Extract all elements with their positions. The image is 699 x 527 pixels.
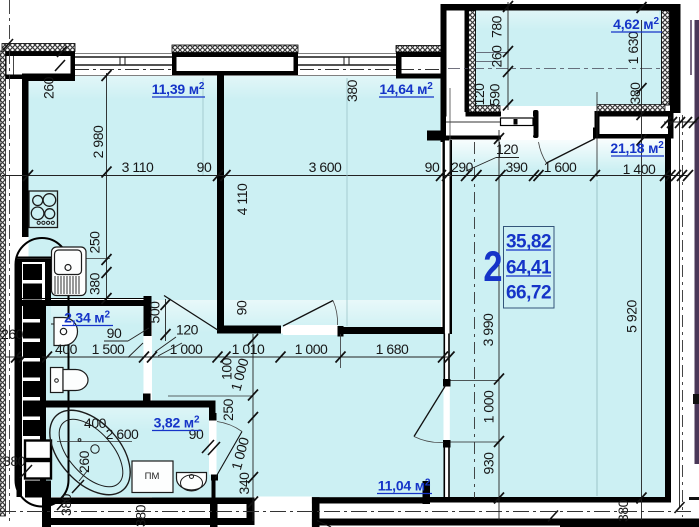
svg-text:1 500: 1 500: [92, 341, 125, 357]
svg-text:1 600: 1 600: [544, 159, 577, 175]
svg-text:14,64 м2: 14,64 м2: [379, 81, 433, 97]
svg-text:1 630: 1 630: [625, 31, 641, 64]
svg-text:590: 590: [487, 83, 503, 106]
svg-text:1 000: 1 000: [481, 390, 497, 423]
svg-text:2 600: 2 600: [106, 426, 139, 442]
svg-text:340: 340: [236, 472, 252, 495]
svg-text:380: 380: [133, 504, 149, 527]
svg-text:120: 120: [496, 141, 519, 157]
svg-text:1 000: 1 000: [295, 341, 328, 357]
svg-text:3 990: 3 990: [480, 313, 496, 346]
svg-text:260: 260: [76, 450, 92, 473]
svg-text:380: 380: [627, 82, 643, 105]
svg-text:1 000: 1 000: [170, 341, 203, 357]
svg-text:250: 250: [220, 398, 236, 421]
svg-text:1 680: 1 680: [376, 341, 409, 357]
svg-text:4,62 м2: 4,62 м2: [613, 16, 659, 32]
svg-text:380: 380: [87, 272, 103, 295]
svg-text:260: 260: [489, 45, 505, 68]
svg-text:400: 400: [84, 415, 107, 431]
svg-text:90: 90: [234, 300, 250, 315]
svg-text:90: 90: [197, 159, 212, 175]
svg-text:380: 380: [58, 493, 74, 516]
svg-text:260: 260: [1, 326, 24, 342]
svg-text:290: 290: [451, 159, 474, 175]
svg-text:2,34 м2: 2,34 м2: [64, 310, 110, 326]
svg-text:11,39 м2: 11,39 м2: [152, 81, 205, 97]
svg-text:250: 250: [87, 231, 103, 254]
svg-text:4 110: 4 110: [234, 183, 250, 215]
svg-text:260: 260: [41, 76, 57, 99]
svg-text:3 600: 3 600: [309, 159, 342, 175]
svg-text:21,18 м2: 21,18 м2: [610, 140, 664, 156]
svg-text:90: 90: [107, 325, 122, 341]
svg-text:66,72: 66,72: [506, 283, 551, 304]
svg-text:780: 780: [489, 15, 505, 38]
svg-text:120: 120: [176, 322, 199, 338]
svg-text:1 400: 1 400: [623, 161, 656, 177]
svg-text:380: 380: [615, 499, 631, 522]
svg-text:3,82 м2: 3,82 м2: [154, 415, 200, 431]
svg-text:380: 380: [3, 453, 26, 469]
svg-text:500: 500: [147, 301, 163, 324]
svg-text:400: 400: [55, 341, 78, 357]
svg-text:11,04 м2: 11,04 м2: [378, 478, 431, 494]
svg-text:2: 2: [483, 243, 502, 290]
svg-text:ПМ: ПМ: [145, 471, 160, 482]
svg-text:390: 390: [505, 159, 528, 175]
svg-text:930: 930: [481, 452, 497, 475]
svg-text:1 010: 1 010: [232, 341, 265, 357]
svg-text:380: 380: [344, 79, 360, 102]
svg-text:3 110: 3 110: [122, 159, 154, 175]
svg-text:2 980: 2 980: [90, 125, 106, 158]
svg-text:90: 90: [425, 159, 440, 175]
svg-text:5 920: 5 920: [624, 299, 640, 332]
svg-text:120: 120: [471, 83, 487, 106]
